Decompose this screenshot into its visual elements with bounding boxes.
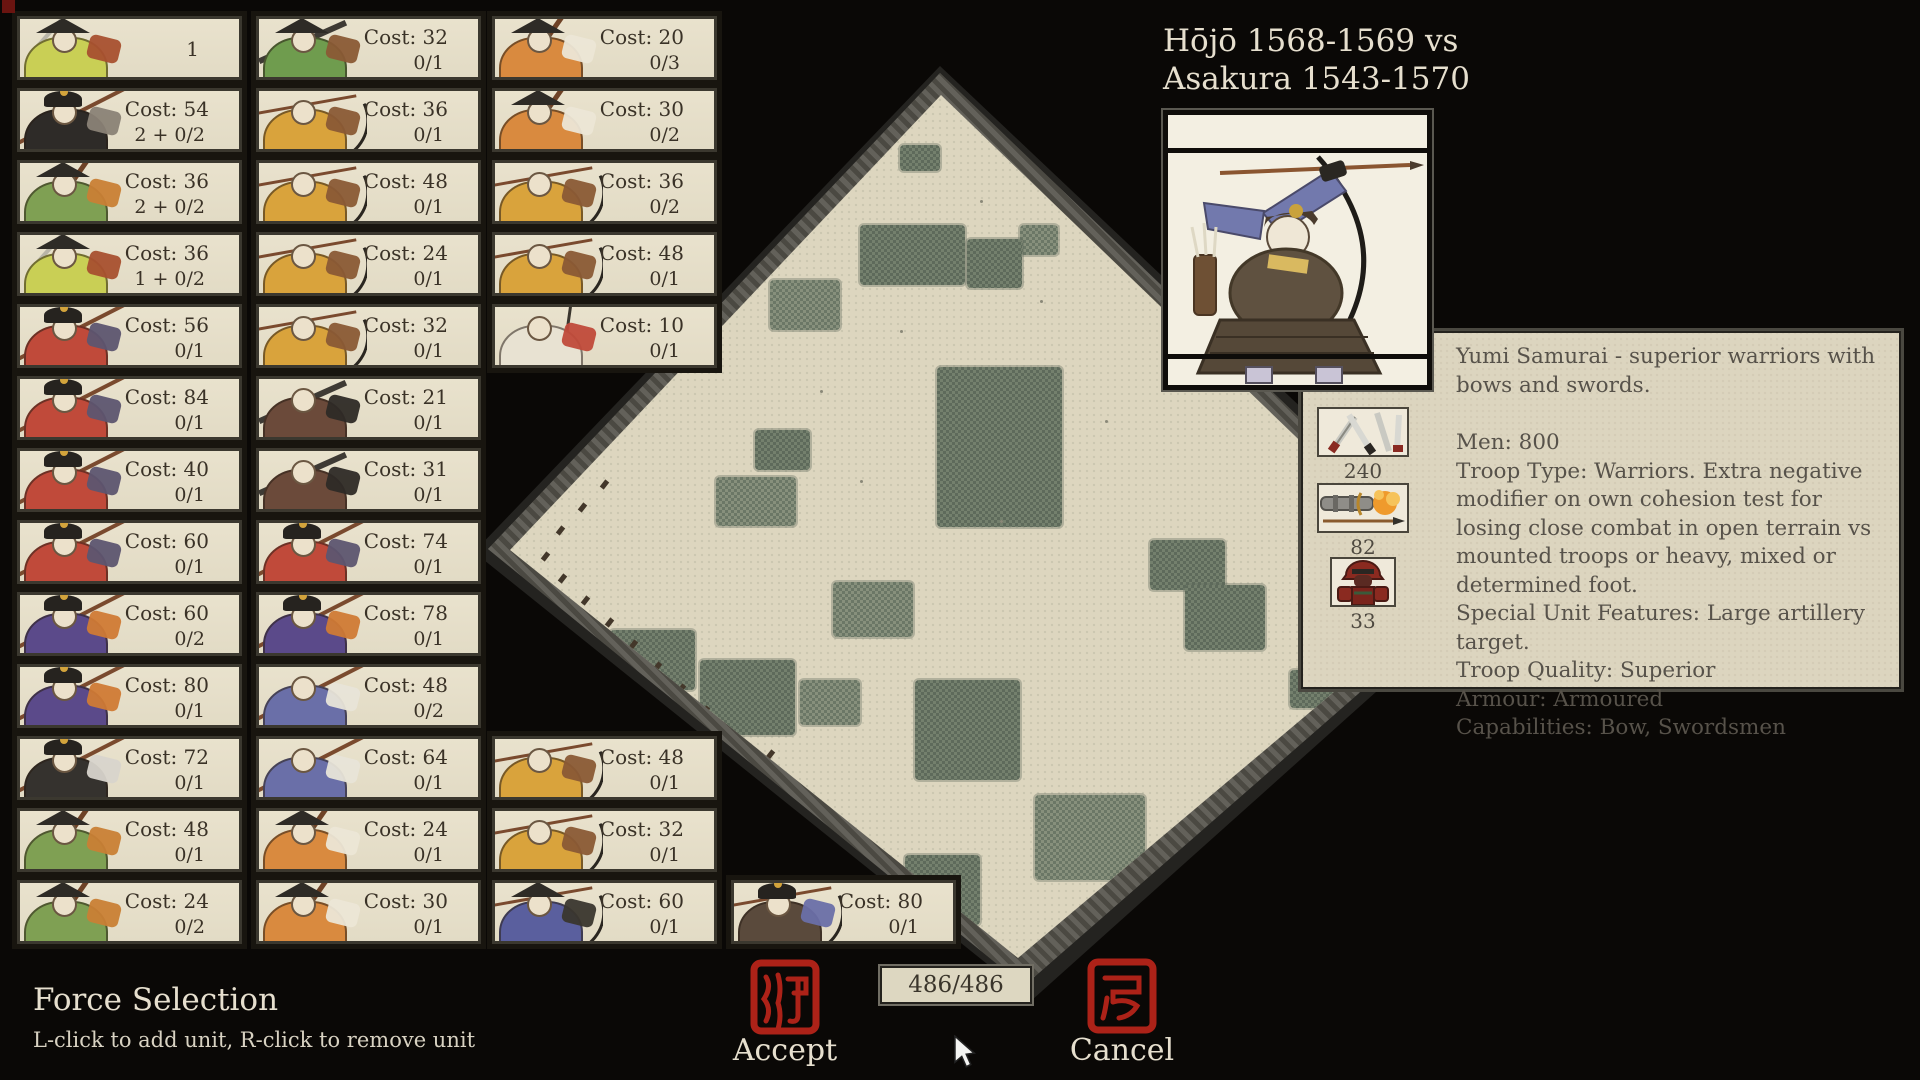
unit-cost: Cost: 74 xyxy=(364,529,448,553)
unit-cost: Cost: 40 xyxy=(125,457,209,481)
unit-card[interactable]: Cost: 320/1 xyxy=(256,16,481,80)
unit-cost: Cost: 78 xyxy=(364,601,448,625)
unit-card-art xyxy=(259,163,367,221)
unit-card[interactable]: Cost: 400/1 xyxy=(17,448,242,512)
unit-cost: Cost: 20 xyxy=(600,25,684,49)
accept-button[interactable] xyxy=(750,959,820,1035)
terrain-patch xyxy=(770,280,840,330)
unit-card[interactable]: Cost: 300/2 xyxy=(492,88,717,152)
accept-button-label[interactable]: Accept xyxy=(715,1033,855,1068)
unit-stat-value: 33 xyxy=(1315,609,1411,633)
terrain-patch xyxy=(800,680,860,725)
unit-selected-count: 0/1 xyxy=(888,916,919,938)
unit-cost: Cost: 48 xyxy=(364,673,448,697)
unit-card[interactable]: Cost: 480/2 xyxy=(256,664,481,728)
unit-card-art xyxy=(259,451,367,509)
unit-selected-count: 0/1 xyxy=(649,340,680,362)
unit-card-art xyxy=(20,91,128,149)
unit-cost: Cost: 36 xyxy=(364,97,448,121)
unit-cost: Cost: 10 xyxy=(600,313,684,337)
unit-card-art xyxy=(259,595,367,653)
unit-card[interactable]: Cost: 600/1 xyxy=(492,880,717,944)
unit-card-art xyxy=(259,811,367,869)
map-speckle xyxy=(980,200,983,203)
terrain-patch xyxy=(860,225,965,285)
unit-selected-count: 0/1 xyxy=(174,556,205,578)
unit-cost: Cost: 72 xyxy=(125,745,209,769)
unit-cost: Cost: 21 xyxy=(364,385,448,409)
unit-card-art xyxy=(20,163,128,221)
unit-cost: Cost: 31 xyxy=(364,457,448,481)
unit-cost: Cost: 60 xyxy=(600,889,684,913)
map-speckle xyxy=(1000,520,1003,523)
unit-selected-count: 0/1 xyxy=(413,916,444,938)
unit-cost: Cost: 48 xyxy=(364,169,448,193)
unit-card[interactable]: Cost: 560/1 xyxy=(17,304,242,368)
unit-card[interactable]: Cost: 360/1 xyxy=(256,88,481,152)
unit-card[interactable]: Cost: 362 + 0/2 xyxy=(17,160,242,224)
unit-selected-count: 0/1 xyxy=(413,412,444,434)
unit-selected-count: 0/1 xyxy=(413,844,444,866)
unit-card[interactable]: Cost: 361 + 0/2 xyxy=(17,232,242,296)
unit-stat: 240 xyxy=(1315,407,1411,483)
unit-card-art xyxy=(20,595,128,653)
unit-card-art xyxy=(259,523,367,581)
unit-selected-count: 0/2 xyxy=(413,700,444,722)
unit-card[interactable]: Cost: 360/2 xyxy=(492,160,717,224)
unit-card[interactable]: Cost: 480/1 xyxy=(492,736,717,800)
unit-card-art xyxy=(20,811,128,869)
unit-cost: Cost: 32 xyxy=(364,25,448,49)
unit-cost: Cost: 36 xyxy=(125,241,209,265)
unit-card[interactable]: Cost: 300/1 xyxy=(256,880,481,944)
unit-info-line: Men: 800 xyxy=(1456,429,1879,458)
unit-card[interactable]: Cost: 600/2 xyxy=(17,592,242,656)
map-speckle xyxy=(900,330,903,333)
unit-card[interactable]: Cost: 640/1 xyxy=(256,736,481,800)
unit-card[interactable]: Cost: 240/1 xyxy=(256,808,481,872)
unit-card-art xyxy=(495,163,603,221)
unit-selected-count: 0/1 xyxy=(413,268,444,290)
unit-card-art xyxy=(20,379,128,437)
unit-card[interactable]: Cost: 210/1 xyxy=(256,376,481,440)
map-speckle xyxy=(1040,300,1043,303)
unit-cost: Cost: 56 xyxy=(125,313,209,337)
unit-card[interactable]: Cost: 780/1 xyxy=(256,592,481,656)
unit-card-art xyxy=(20,883,128,941)
deployed-unit-marker xyxy=(581,595,590,605)
unit-card-art xyxy=(20,19,128,77)
unit-selected-count: 0/1 xyxy=(174,484,205,506)
cancel-button-label[interactable]: Cancel xyxy=(1052,1033,1192,1068)
battle-title-line1: Hōjō 1568-1569 vs xyxy=(1163,22,1470,60)
unit-card-art xyxy=(495,883,603,941)
unit-selected-count: 0/1 xyxy=(413,484,444,506)
terrain-patch xyxy=(1185,585,1265,650)
terrain-patch xyxy=(716,477,796,526)
deployed-unit-marker xyxy=(600,479,609,489)
unit-info-text: Yumi Samurai - superior warriors with bo… xyxy=(1456,343,1879,743)
terrain-patch xyxy=(900,145,940,171)
unit-card[interactable]: Cost: 240/1 xyxy=(256,232,481,296)
unit-cost: Cost: 60 xyxy=(125,601,209,625)
unit-selected-count: 0/1 xyxy=(174,772,205,794)
unit-selected-count: 0/1 xyxy=(174,340,205,362)
unit-card[interactable]: Cost: 200/3 xyxy=(492,16,717,80)
unit-cost: Cost: 60 xyxy=(125,529,209,553)
unit-selected-count: 0/1 xyxy=(413,52,444,74)
unit-description: Yumi Samurai - superior warriors with bo… xyxy=(1456,343,1879,400)
unit-stat: 33 xyxy=(1315,557,1411,633)
unit-cost: Cost: 64 xyxy=(364,745,448,769)
unit-cost: Cost: 80 xyxy=(125,673,209,697)
unit-selected-count: 0/1 xyxy=(413,556,444,578)
battle-title-line2: Asakura 1543-1570 xyxy=(1163,60,1470,98)
unit-card[interactable]: Cost: 600/1 xyxy=(17,520,242,584)
unit-cost: Cost: 48 xyxy=(600,745,684,769)
map-speckle xyxy=(820,390,823,393)
unit-card-art xyxy=(20,451,128,509)
unit-card-art xyxy=(20,235,128,293)
portrait-frame-rule xyxy=(1168,148,1427,153)
terrain-patch xyxy=(1150,540,1225,590)
unit-selected-count: 0/2 xyxy=(649,124,680,146)
gun-icon xyxy=(1317,483,1409,533)
unit-card[interactable]: Cost: 320/1 xyxy=(492,808,717,872)
deployed-unit-marker xyxy=(558,573,567,583)
instruction-hint: L-click to add unit, R-click to remove u… xyxy=(33,1028,475,1052)
unit-selected-count: 0/1 xyxy=(649,268,680,290)
unit-selected-count: 0/1 xyxy=(413,196,444,218)
deployed-unit-marker xyxy=(605,617,614,627)
unit-selected-count: 0/1 xyxy=(649,772,680,794)
unit-card[interactable]: Cost: 480/1 xyxy=(492,232,717,296)
unit-cost: Cost: 24 xyxy=(364,817,448,841)
deployed-unit-marker xyxy=(556,525,565,535)
screen-title: Force Selection xyxy=(33,982,278,1018)
unit-card-art xyxy=(20,523,128,581)
terrain-patch xyxy=(937,367,1062,527)
unit-card[interactable]: Cost: 542 + 0/2 xyxy=(17,88,242,152)
unit-selected-count: 1 xyxy=(186,37,199,61)
deployed-unit-marker xyxy=(578,502,587,512)
unit-card-art xyxy=(259,307,367,365)
terrain-patch xyxy=(755,430,810,470)
unit-selected-count: 2 + 0/2 xyxy=(134,196,205,218)
unit-info-line: Armour: Armoured xyxy=(1456,686,1879,715)
unit-cost: Cost: 80 xyxy=(839,889,923,913)
deployed-unit-marker xyxy=(541,551,550,561)
unit-card-art xyxy=(495,235,603,293)
unit-selected-count: 0/1 xyxy=(413,628,444,650)
unit-selected-count: 0/2 xyxy=(649,196,680,218)
unit-card-art xyxy=(20,307,128,365)
unit-selected-count: 0/1 xyxy=(174,844,205,866)
unit-cost: Cost: 36 xyxy=(125,169,209,193)
unit-selected-count: 0/1 xyxy=(174,412,205,434)
unit-selected-count: 2 + 0/2 xyxy=(134,124,205,146)
unit-selected-count: 0/1 xyxy=(174,700,205,722)
unit-cost: Cost: 32 xyxy=(364,313,448,337)
unit-card-art xyxy=(20,739,128,797)
cancel-button[interactable] xyxy=(1087,958,1157,1034)
unit-info-line: Troop Quality: Superior xyxy=(1456,657,1879,686)
swords-icon xyxy=(1317,407,1409,457)
unit-card-art xyxy=(495,811,603,869)
unit-card[interactable]: Cost: 240/2 xyxy=(17,880,242,944)
accept-seal-icon xyxy=(750,959,820,1035)
unit-info-line: Troop Type: Warriors. Extra negative mod… xyxy=(1456,458,1879,601)
unit-card-art xyxy=(734,883,842,941)
unit-selected-count: 1 + 0/2 xyxy=(134,268,205,290)
corner-mark xyxy=(2,0,15,13)
unit-selected-count: 0/1 xyxy=(413,340,444,362)
unit-card[interactable]: Cost: 840/1 xyxy=(17,376,242,440)
unit-card[interactable]: Cost: 480/1 xyxy=(256,160,481,224)
map-speckle xyxy=(1105,420,1108,423)
unit-cost: Cost: 48 xyxy=(600,241,684,265)
unit-card-art xyxy=(495,91,603,149)
armour-icon xyxy=(1330,557,1396,607)
terrain-patch xyxy=(967,239,1022,288)
unit-cost: Cost: 84 xyxy=(125,385,209,409)
unit-selected-count: 0/3 xyxy=(649,52,680,74)
unit-card-art xyxy=(259,667,367,725)
unit-selected-count: 0/1 xyxy=(413,772,444,794)
unit-card-art xyxy=(20,667,128,725)
unit-cost: Cost: 30 xyxy=(364,889,448,913)
unit-card[interactable]: 1 xyxy=(17,16,242,80)
unit-info-line: Special Unit Features: Large artillery t… xyxy=(1456,600,1879,657)
unit-info-line: Capabilities: Bow, Swordsmen xyxy=(1456,714,1879,743)
unit-stat-value: 82 xyxy=(1315,535,1411,559)
unit-card[interactable]: Cost: 720/1 xyxy=(17,736,242,800)
samurai-archer-illustration xyxy=(1168,115,1427,385)
unit-info-lines: Men: 800Troop Type: Warriors. Extra nega… xyxy=(1456,429,1879,743)
cancel-seal-icon xyxy=(1087,958,1157,1034)
unit-cost: Cost: 48 xyxy=(125,817,209,841)
unit-card-art xyxy=(259,235,367,293)
unit-selected-count: 0/2 xyxy=(174,916,205,938)
unit-card[interactable]: Cost: 480/1 xyxy=(17,808,242,872)
unit-cost: Cost: 24 xyxy=(125,889,209,913)
unit-card-art xyxy=(495,739,603,797)
terrain-patch xyxy=(1020,225,1058,255)
unit-card[interactable]: Cost: 320/1 xyxy=(256,304,481,368)
unit-card[interactable]: Cost: 100/1 xyxy=(492,304,717,368)
unit-card-art xyxy=(259,91,367,149)
unit-cost: Cost: 30 xyxy=(600,97,684,121)
terrain-patch xyxy=(915,680,1020,780)
unit-stat: 82 xyxy=(1315,483,1411,559)
unit-card-art xyxy=(259,739,367,797)
unit-selected-count: 0/2 xyxy=(174,628,205,650)
map-speckle xyxy=(860,480,863,483)
points-counter: 486/486 xyxy=(880,966,1032,1004)
unit-card[interactable]: Cost: 800/1 xyxy=(731,880,956,944)
unit-card-art xyxy=(259,883,367,941)
unit-stat-value: 240 xyxy=(1315,459,1411,483)
unit-selected-count: 0/1 xyxy=(649,844,680,866)
unit-cost: Cost: 54 xyxy=(125,97,209,121)
unit-card[interactable]: Cost: 800/1 xyxy=(17,664,242,728)
unit-selected-count: 0/1 xyxy=(413,124,444,146)
unit-card[interactable]: Cost: 740/1 xyxy=(256,520,481,584)
unit-card-art xyxy=(495,19,603,77)
unit-card[interactable]: Cost: 310/1 xyxy=(256,448,481,512)
unit-cost: Cost: 32 xyxy=(600,817,684,841)
unit-cost: Cost: 36 xyxy=(600,169,684,193)
terrain-patch xyxy=(833,582,913,637)
mouse-cursor xyxy=(950,1035,978,1073)
portrait-frame-rule xyxy=(1168,354,1427,359)
battle-title: Hōjō 1568-1569 vs Asakura 1543-1570 xyxy=(1163,22,1470,98)
unit-card-art xyxy=(495,307,603,365)
unit-selected-count: 0/1 xyxy=(649,916,680,938)
unit-card-art xyxy=(259,379,367,437)
unit-cost: Cost: 24 xyxy=(364,241,448,265)
selected-unit-portrait xyxy=(1163,110,1432,390)
unit-card-art xyxy=(259,19,367,77)
